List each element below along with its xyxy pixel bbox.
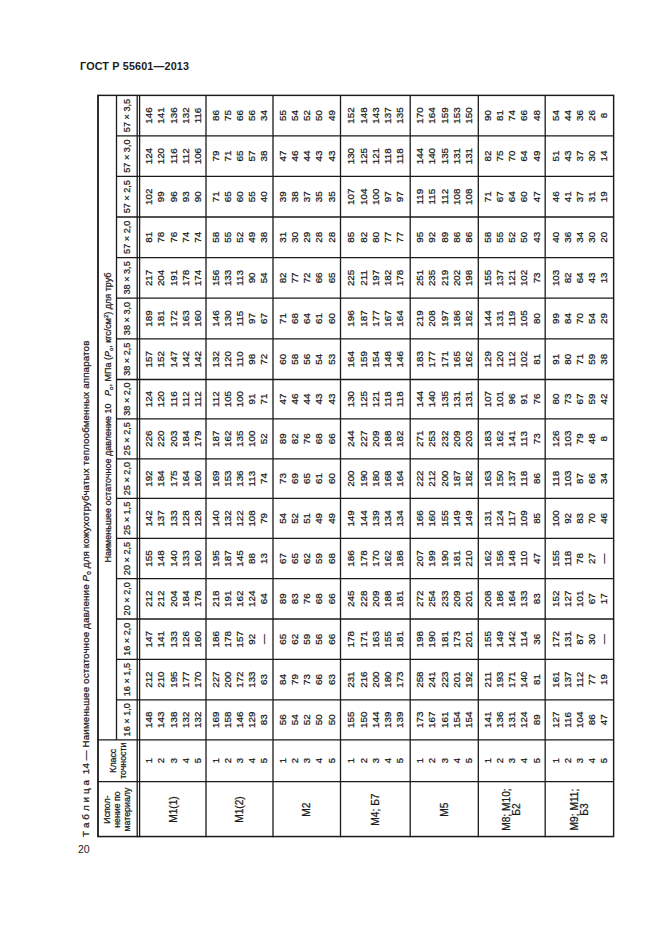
- svg-text:М1(1): М1(1): [167, 796, 178, 823]
- svg-text:точности: точности: [118, 742, 128, 778]
- svg-text:154192201201210149182203131162: 1541922012012101491822031311621821988610…: [463, 106, 474, 727]
- svg-text:8363—6413797452717267543840383: 8363—64137974527172675438403834: [258, 109, 269, 725]
- svg-text:38 × 2,0: 38 × 2,0: [122, 382, 132, 415]
- svg-text:4: 4: [246, 758, 257, 763]
- svg-text:20 × 2,0: 20 × 2,0: [122, 582, 132, 615]
- svg-text:25 × 2,0: 25 × 2,0: [122, 461, 132, 494]
- svg-text:4: 4: [518, 758, 529, 763]
- svg-text:148212147212155142192226124157: 1482121472121551421922261241571892178110…: [143, 106, 154, 727]
- svg-text:116137131127118921031037380848: 116137131127118921031037380848236414344: [561, 109, 572, 727]
- svg-text:506366666849606643536065283543: 50636666684960664353606528354349: [325, 110, 336, 725]
- svg-text:25 × 2,5: 25 × 2,5: [122, 422, 132, 455]
- svg-text:132170160178160128160179112142: 1321701601781601281601791121421601747490…: [191, 107, 202, 728]
- svg-text:20 × 2,5: 20 × 2,5: [122, 541, 132, 574]
- svg-text:3: 3: [369, 758, 380, 763]
- svg-text:2: 2: [221, 758, 232, 763]
- svg-text:Б2: Б2: [510, 803, 521, 816]
- svg-text:1: 1: [276, 758, 287, 763]
- svg-text:506656685949616843546166283543: 50665668594961684354616628354350: [313, 109, 324, 725]
- svg-text:167241190254199160212253140177: 1672411902541991602122531401772082359211…: [426, 106, 437, 727]
- svg-text:М8; М10;: М8; М10;: [500, 788, 511, 830]
- svg-text:3: 3: [167, 758, 178, 763]
- svg-text:2: 2: [289, 758, 300, 763]
- svg-text:Наименьшее остаточное давление: Наименьшее остаточное давление 10 Ро, МП…: [102, 272, 113, 562]
- svg-text:25 × 1,5: 25 × 1,5: [122, 501, 132, 534]
- svg-text:3: 3: [506, 758, 517, 763]
- svg-text:38 × 3,0: 38 × 3,0: [122, 301, 132, 334]
- svg-text:139180155188162134168188118148: 1391801551881621341681881181481671827797…: [381, 107, 392, 728]
- svg-text:М1(2): М1(2): [233, 796, 244, 823]
- svg-text:материалу: материалу: [122, 787, 132, 831]
- svg-text:154201173209181149187209131165: 1542011732091811491872091311651862028610…: [450, 106, 461, 727]
- svg-text:1: 1: [414, 758, 425, 763]
- svg-text:16 × 2,0: 16 × 2,0: [122, 622, 132, 655]
- svg-text:2: 2: [155, 758, 166, 763]
- svg-text:143210141212148137184220120152: 1432101412121481371842201201521812047899…: [155, 107, 166, 728]
- svg-text:139173181181188134164182118146: 1391731811811881341641821181461641787797…: [394, 106, 405, 727]
- svg-text:57 × 3,5: 57 × 3,5: [122, 98, 132, 131]
- svg-text:М4; Б7: М4; Б7: [369, 793, 380, 825]
- svg-text:1: 1: [345, 758, 356, 763]
- svg-text:нение по: нение по: [112, 791, 122, 828]
- svg-text:1: 1: [209, 758, 220, 763]
- svg-text:2: 2: [493, 758, 504, 763]
- svg-text:2: 2: [357, 758, 368, 763]
- svg-text:4: 4: [586, 758, 597, 763]
- svg-text:М5: М5: [438, 802, 449, 816]
- svg-text:3: 3: [573, 758, 584, 763]
- svg-text:16 × 1,5: 16 × 1,5: [122, 662, 132, 695]
- svg-text:3: 3: [301, 758, 312, 763]
- svg-text:1: 1: [143, 758, 154, 763]
- svg-text:568465896754738947607182313947: 56846589675473894760718231394755: [276, 109, 287, 725]
- svg-text:898136834785867376818073434749: 89813683478586737681807343474948: [530, 109, 541, 725]
- svg-text:38 × 3,5: 38 × 3,5: [122, 261, 132, 294]
- svg-text:4: 4: [313, 758, 324, 763]
- svg-text:4: 4: [450, 758, 461, 763]
- svg-text:5: 5: [325, 758, 336, 763]
- svg-text:3: 3: [233, 758, 244, 763]
- svg-text:150216171228178144190227125159: 1502161712281781441902271251591872118210…: [357, 106, 368, 727]
- svg-text:144200163209170139180209121154: 1442001632091701391802091211541771978010…: [369, 106, 380, 727]
- svg-text:5: 5: [598, 758, 609, 763]
- svg-text:2: 2: [426, 758, 437, 763]
- svg-text:57 × 2,5: 57 × 2,5: [122, 180, 132, 213]
- svg-text:4: 4: [381, 758, 392, 763]
- svg-text:16 × 1,0: 16 × 1,0: [122, 703, 132, 736]
- svg-text:5: 5: [530, 758, 541, 763]
- svg-text:57 × 3,0: 57 × 3,0: [122, 139, 132, 172]
- svg-text:3: 3: [438, 758, 449, 763]
- svg-text:1: 1: [481, 758, 492, 763]
- svg-text:547962836552698246586877303846: 54796283655269824658687730384654: [289, 109, 300, 725]
- svg-text:Испол-: Испол-: [102, 795, 112, 823]
- svg-text:2: 2: [561, 758, 572, 763]
- svg-text:57 × 2,0: 57 × 2,0: [122, 220, 132, 253]
- svg-text:М9; М11;: М9; М11;: [568, 788, 579, 830]
- svg-text:138195133204140133175203116147: 1381951332041401331752031161471721917696…: [167, 106, 178, 727]
- svg-text:5: 5: [258, 758, 269, 763]
- svg-text:5: 5: [394, 758, 405, 763]
- svg-text:4: 4: [179, 758, 190, 763]
- svg-text:1: 1: [549, 758, 560, 763]
- svg-text:867730672770664859595443303130: 86773067277066485959544330313026: [586, 109, 597, 725]
- svg-text:38 × 2,5: 38 × 2,5: [122, 342, 132, 375]
- svg-text:161223181233190155200232135171: 1612231812331901552002321351711972198911…: [438, 107, 449, 728]
- svg-text:527359766251657644566472293744: 52735976625165764456647229374452: [301, 110, 312, 725]
- svg-text:М2: М2: [301, 802, 312, 816]
- svg-text:Б3: Б3: [578, 803, 589, 816]
- svg-text:132177126184133128164184112142: 1321771261841331281641841121421631787493…: [179, 107, 190, 728]
- svg-text:Класс: Класс: [107, 748, 117, 773]
- svg-text:5: 5: [191, 758, 202, 763]
- svg-text:5: 5: [463, 758, 474, 763]
- svg-text:155231178245186149200244130164: 1552311782451861492002441301641962258510…: [345, 107, 356, 728]
- svg-text:173258198272207166222271144183: 1732581982722071662222711441832192519511…: [414, 106, 425, 727]
- svg-text:Т а б л и ц а 14 — Наименьшее: Т а б л и ц а 14 — Наименьшее остаточное…: [80, 340, 92, 837]
